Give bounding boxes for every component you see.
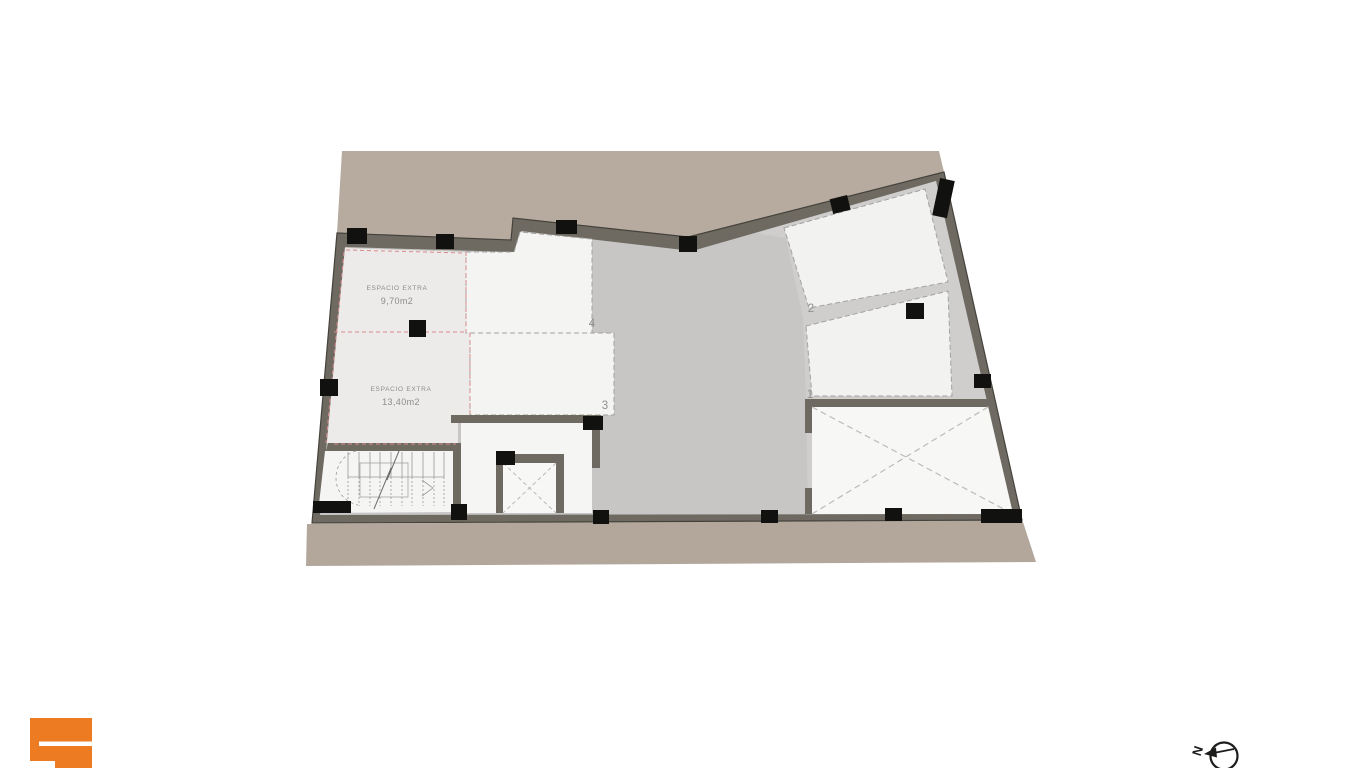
void-block	[805, 399, 1013, 514]
column	[409, 320, 426, 337]
room-3-floor	[470, 333, 614, 415]
column	[761, 510, 778, 523]
column	[981, 509, 1022, 523]
space-2-number: 2	[808, 303, 814, 315]
void-left-wall-lower	[805, 488, 812, 514]
column	[496, 451, 515, 465]
column	[313, 501, 351, 513]
north-label: N	[1189, 744, 1206, 758]
space-3-number: 3	[602, 400, 608, 412]
void-left-wall-upper	[805, 407, 812, 433]
column	[320, 379, 338, 396]
espacio-2-label: ESPACIO EXTRA	[371, 386, 432, 393]
space-4-number: 4	[589, 318, 596, 330]
shaft-block	[451, 415, 601, 513]
column	[556, 220, 577, 234]
orange-logo-mark	[30, 718, 92, 768]
espacio-1-area: 9,70m2	[381, 296, 413, 306]
shaft-right-wall	[556, 463, 564, 513]
column	[679, 236, 697, 252]
column	[906, 303, 924, 319]
north-arrow-icon: N	[1189, 743, 1238, 768]
column	[885, 508, 902, 521]
site-ground-bottom	[306, 519, 1036, 566]
floor-plan-canvas: ESPACIO EXTRA 9,70m2 ESPACIO EXTRA 13,40…	[0, 0, 1366, 768]
column	[593, 510, 609, 524]
shaft-block-top-wall	[451, 415, 601, 423]
column	[451, 504, 467, 520]
stair-right-wall	[453, 443, 461, 513]
column	[583, 416, 603, 430]
column	[974, 374, 991, 388]
void-top-wall	[805, 399, 988, 407]
column	[347, 228, 367, 244]
space-1-number: 1	[807, 389, 813, 401]
column	[436, 234, 454, 249]
shaft-left-wall	[496, 463, 503, 513]
page: ESPACIO EXTRA 9,70m2 ESPACIO EXTRA 13,40…	[0, 0, 1366, 768]
espacio-1-label: ESPACIO EXTRA	[367, 285, 428, 292]
espacio-2-area: 13,40m2	[382, 397, 420, 407]
